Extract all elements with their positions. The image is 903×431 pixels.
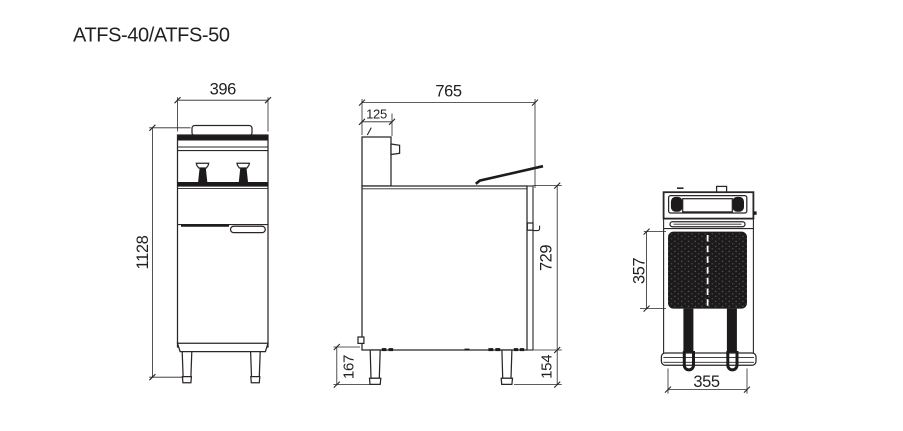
leg-foot [182,377,191,383]
leg-foot [370,378,381,384]
front-view [177,126,268,383]
dim-label-729: 729 [538,245,556,272]
leg [251,352,261,377]
dim-top-tank-width: 355 [665,369,750,394]
top-view [661,186,756,370]
basket-handle-bar [727,309,737,353]
base-tab [382,348,387,351]
dim-side-body-height: 729 [533,183,562,353]
dim-top-tank-depth: 357 [631,229,667,312]
front-rail [661,353,756,365]
knob-stem-right [239,168,248,182]
knob-stem-left [198,168,207,182]
rear-bracket [527,223,533,230]
leg [182,352,192,377]
base-tab [520,348,524,351]
dim-label-125: 125 [366,107,387,122]
flue-cap-left [671,197,683,212]
leg [370,350,380,378]
base-tab [514,348,518,351]
side-view [358,128,543,385]
dim-label-167: 167 [341,355,358,379]
dim-label-357: 357 [631,258,649,285]
technical-drawing-page: ATFS-40/ATFS-50 396 [0,0,903,431]
base-tab [495,348,500,351]
control-panel-band [177,182,268,187]
base-tab [488,348,493,351]
basket-handle-bar [683,309,693,353]
dim-label-1128: 1128 [134,235,152,269]
basket-handle-side [476,166,543,184]
dim-label-765: 765 [435,83,462,101]
dim-side-rear-leg: 154 [514,350,562,388]
lid-edge-mark [367,128,371,135]
fryer-body-side [362,186,527,350]
flue-opening [683,199,733,212]
knob-cap-left [196,163,208,168]
fryer-lid [192,126,252,136]
leg-foot [501,378,512,384]
fryer-body-front [178,135,269,347]
page-title: ATFS-40/ATFS-50 [73,25,230,47]
dim-side-panel-depth: 125 [359,107,395,136]
door-handle [231,226,266,232]
base-rim [178,343,269,351]
dim-label-396: 396 [210,81,237,99]
rear-hook [533,226,540,231]
gas-connection [358,337,364,343]
dim-front-width: 396 [175,81,272,132]
side-clip [753,211,756,214]
dim-label-355: 355 [693,373,720,391]
base-tab [389,348,394,351]
control-panel-side [362,137,391,186]
leg-foot [251,377,260,383]
leg [502,350,512,378]
knob-side [391,144,400,155]
knob-cap-right [237,163,249,168]
base-tab [465,349,470,351]
top-trim-band [178,135,268,140]
dim-label-154: 154 [539,355,556,379]
flue-cap-right [732,197,744,212]
